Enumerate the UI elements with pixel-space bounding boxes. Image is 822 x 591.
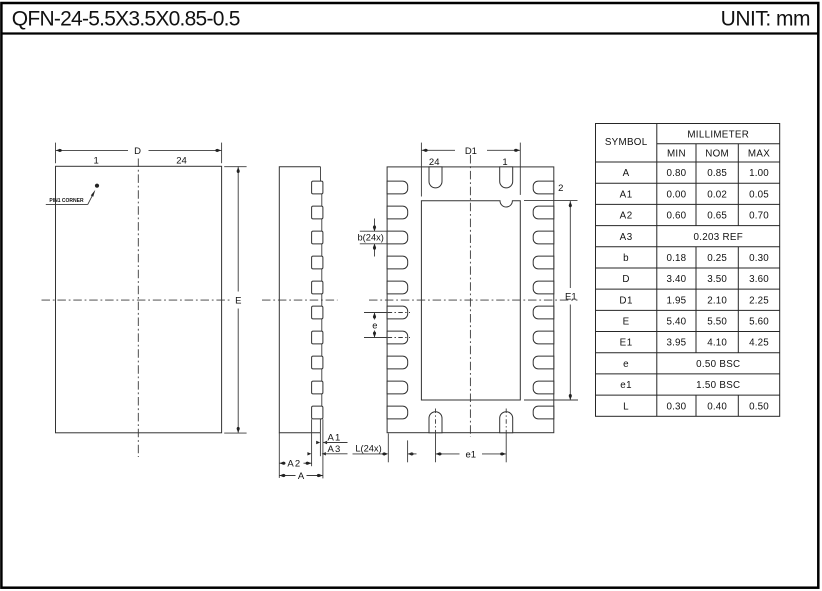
svg-text:3.50: 3.50 [707,274,727,285]
svg-text:24: 24 [429,157,440,168]
svg-text:MIN: MIN [667,148,686,159]
svg-text:0.00: 0.00 [666,189,686,200]
svg-text:SYMBOL: SYMBOL [605,137,648,148]
svg-text:A2: A2 [287,459,301,470]
svg-text:2.25: 2.25 [749,295,769,306]
svg-text:E1: E1 [565,291,577,302]
svg-text:b(24x): b(24x) [358,233,384,243]
svg-text:0.50: 0.50 [749,401,769,412]
svg-text:A3: A3 [620,232,633,243]
svg-text:MAX: MAX [748,148,770,159]
svg-text:A3: A3 [327,444,341,455]
svg-text:0.05: 0.05 [749,189,769,200]
svg-text:0.85: 0.85 [707,168,727,179]
svg-text:1.95: 1.95 [666,295,686,306]
svg-text:2: 2 [558,183,563,194]
svg-text:A1: A1 [327,433,341,444]
svg-text:1.00: 1.00 [749,168,769,179]
svg-text:QFN-24-5.5X3.5X0.85-0.5: QFN-24-5.5X3.5X0.85-0.5 [12,8,240,31]
svg-text:E: E [235,296,241,307]
svg-text:A: A [298,471,305,482]
svg-text:0.40: 0.40 [707,401,727,412]
svg-text:3.95: 3.95 [666,338,686,349]
svg-text:MILLIMETER: MILLIMETER [687,129,749,140]
svg-text:b: b [623,253,629,264]
svg-text:D: D [134,146,141,157]
svg-text:A1: A1 [620,189,633,200]
svg-text:E1: E1 [620,338,633,349]
svg-text:L(24x): L(24x) [355,443,381,453]
svg-text:2.10: 2.10 [707,295,727,306]
svg-text:0.02: 0.02 [707,189,727,200]
svg-text:0.80: 0.80 [666,168,686,179]
svg-text:0.65: 0.65 [707,211,727,222]
svg-text:0.60: 0.60 [666,211,686,222]
svg-text:0.18: 0.18 [666,253,686,264]
svg-text:E: E [623,317,630,328]
svg-text:PIN1 CORNER: PIN1 CORNER [49,198,84,204]
svg-text:1: 1 [502,157,507,168]
svg-text:D: D [622,274,630,285]
svg-text:UNIT: mm: UNIT: mm [721,8,810,31]
svg-text:0.30: 0.30 [749,253,769,264]
svg-text:L: L [623,401,629,412]
svg-text:5.40: 5.40 [666,317,686,328]
svg-text:e1: e1 [466,449,477,460]
svg-text:e: e [372,320,377,330]
svg-text:5.60: 5.60 [749,317,769,328]
svg-text:5.50: 5.50 [707,317,727,328]
svg-text:D1: D1 [619,295,633,306]
svg-text:0.30: 0.30 [666,401,686,412]
svg-text:4.25: 4.25 [749,338,769,349]
svg-text:e1: e1 [620,380,632,391]
svg-text:A: A [623,168,630,179]
svg-text:A2: A2 [620,211,633,222]
svg-text:4.10: 4.10 [707,338,727,349]
svg-text:D1: D1 [465,146,477,157]
svg-text:3.60: 3.60 [749,274,769,285]
svg-text:0.70: 0.70 [749,211,769,222]
svg-text:1: 1 [94,156,99,167]
svg-text:24: 24 [176,156,187,167]
svg-text:0.50 BSC: 0.50 BSC [696,359,740,370]
svg-text:NOM: NOM [705,148,729,159]
svg-text:0.25: 0.25 [707,253,727,264]
svg-text:1.50 BSC: 1.50 BSC [696,380,740,391]
svg-text:0.203 REF: 0.203 REF [693,232,743,243]
svg-text:3.40: 3.40 [666,274,686,285]
svg-text:e: e [623,359,629,370]
